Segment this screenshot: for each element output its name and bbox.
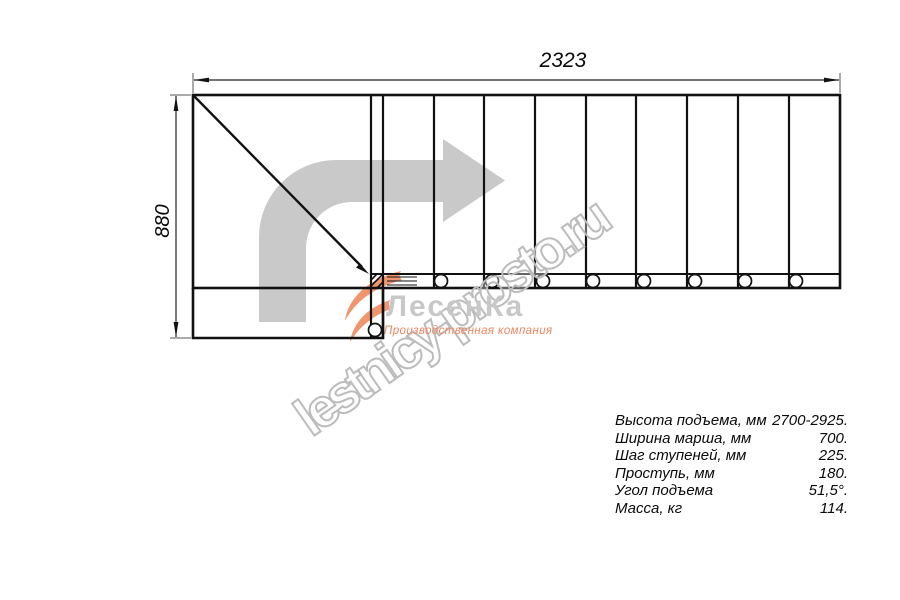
spec-value: 180. bbox=[819, 465, 848, 483]
staircase-drawing-page: 2323 880 lestnicy-prosto.ru ЛесенКа Прои… bbox=[0, 0, 900, 600]
spec-label: Шаг ступеней, мм bbox=[615, 447, 746, 465]
spec-row-tread: Проступь, мм 180. bbox=[615, 465, 848, 483]
spec-table: Высота подъема, мм 2700-2925. Ширина мар… bbox=[615, 412, 848, 518]
spec-label: Масса, кг bbox=[615, 500, 682, 518]
spec-value: 700. bbox=[819, 430, 848, 448]
spec-value: 2700-2925. bbox=[772, 412, 848, 430]
diagonal-arrowhead bbox=[356, 264, 369, 275]
spec-label: Угол подъема bbox=[615, 482, 713, 500]
dimension-width bbox=[193, 73, 840, 93]
spec-row-march-width: Ширина марша, мм 700. bbox=[615, 430, 848, 448]
logo-subtitle: Производственная компания bbox=[384, 325, 553, 337]
spec-value: 51,5°. bbox=[809, 482, 848, 500]
dimension-height-label: 880 bbox=[148, 191, 178, 251]
spec-row-height: Высота подъема, мм 2700-2925. bbox=[615, 412, 848, 430]
spec-label: Проступь, мм bbox=[615, 465, 715, 483]
dimension-width-label: 2323 bbox=[513, 49, 613, 73]
spec-row-angle: Угол подъема 51,5°. bbox=[615, 482, 848, 500]
spec-label: Ширина марша, мм bbox=[615, 430, 751, 448]
logo-company-name: ЛесенКа bbox=[386, 290, 524, 324]
spec-value: 225. bbox=[819, 447, 848, 465]
spec-value: 114. bbox=[820, 500, 848, 518]
spec-row-mass: Масса, кг 114. bbox=[615, 500, 848, 518]
spec-label: Высота подъема, мм bbox=[615, 412, 767, 430]
spec-row-step-pitch: Шаг ступеней, мм 225. bbox=[615, 447, 848, 465]
